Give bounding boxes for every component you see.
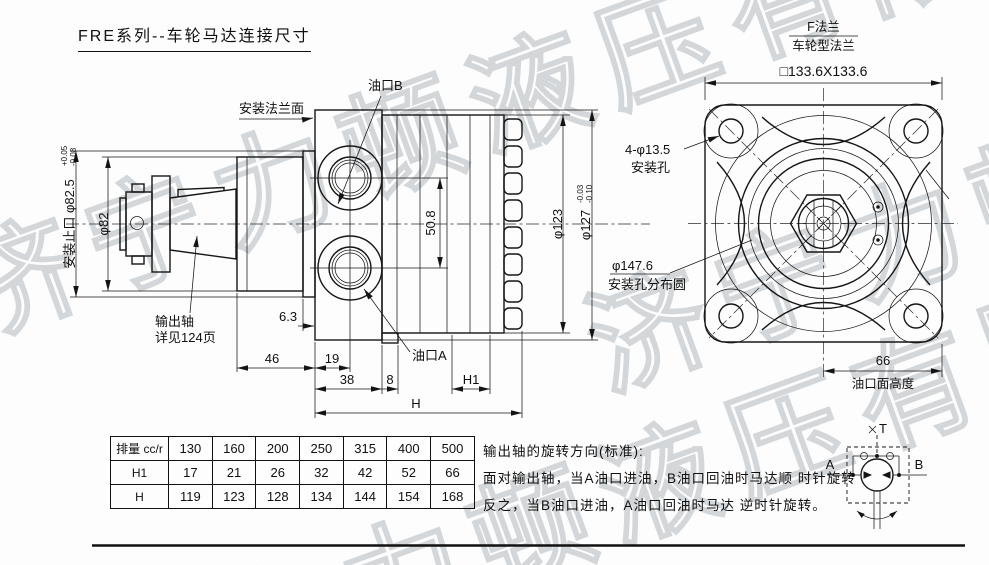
shaft-note-line1: 输出轴: [155, 314, 194, 329]
output-shaft-symbol: [857, 491, 897, 529]
flow-arrows: [864, 471, 891, 478]
bolt-circle-callout: φ147.6 安装孔分布圆: [608, 240, 752, 292]
table-cell: 42: [343, 461, 387, 485]
flange-type-top: F法兰: [807, 20, 840, 34]
table-cell: 32: [300, 461, 344, 485]
bolt-circle-line1: φ147.6: [612, 258, 653, 273]
motor-body: [382, 115, 504, 343]
port-t-label: T: [879, 421, 887, 436]
rotation-arrow: [857, 511, 897, 519]
table-header-row: 排量 cc/r 130 160 200 250 315 400 500: [111, 437, 475, 461]
dim-pilot-length: 6.3: [279, 299, 314, 331]
dim-38-label: 38: [340, 372, 354, 387]
dia-127-tol-upper: -0.03: [576, 184, 585, 203]
dim-50-8-label: 50.8: [423, 210, 438, 235]
dim-6-3-label: 6.3: [279, 309, 297, 324]
rotation-note: 输出轴的旋转方向(标准): 面对输出轴，当A油口进油，B油口回油时马达顺 时针旋…: [483, 438, 856, 519]
dim-19-label: 19: [325, 351, 339, 366]
col-header-displacement: 排量 cc/r: [111, 437, 169, 461]
dim-8-label: 8: [386, 372, 393, 387]
col-header: 200: [256, 437, 300, 461]
shaft-hub: [791, 195, 857, 252]
dim-port-spacing: 50.8: [423, 178, 440, 268]
table-cell: 128: [256, 485, 300, 509]
port-block: [315, 110, 382, 340]
col-header: 315: [343, 437, 387, 461]
port-b-leader: [338, 96, 381, 204]
table-cell: 123: [212, 485, 256, 509]
row-label: H1: [111, 461, 169, 485]
shaft-note-line2: 详见124页: [155, 330, 216, 345]
table-cell: 26: [256, 461, 300, 485]
port-a-label: 油口A: [412, 348, 447, 363]
page-title: FRE系列--车轮马达连接尺寸: [78, 22, 311, 52]
spec-table: 排量 cc/r 130 160 200 250 315 400 500 H1 1…: [110, 436, 475, 509]
pilot-dia-label: 安装止口 φ82.5: [62, 179, 77, 268]
port-face-height-label: 油口面高度: [852, 376, 915, 391]
dia-127-label: φ127: [578, 210, 593, 240]
rotation-note-line3: 反之，当B油口进油，A油口回油时马达 逆时针旋转。: [483, 492, 856, 519]
dim-66-label: 66: [876, 353, 890, 368]
col-header: 160: [212, 437, 256, 461]
mount-face-leader: [239, 118, 313, 119]
shaft-note-leader: [190, 236, 197, 313]
table-cell: 154: [387, 485, 431, 509]
square-size-label: □133.6X133.6: [780, 63, 868, 79]
rotation-note-line1: 输出轴的旋转方向(标准):: [483, 438, 856, 465]
table-cell: 17: [169, 461, 213, 485]
table-cell: 119: [169, 485, 213, 509]
side-view: 油口B 安装法兰面 输出轴 详见124页 油口A 安装止口 φ82.5 +0.0…: [60, 78, 650, 418]
dia-127-tol-lower: -0.10: [585, 184, 594, 203]
table-row-h: H 119 123 128 134 144 154 168: [111, 485, 475, 509]
table-cell: 168: [431, 485, 475, 509]
col-header: 500: [431, 437, 475, 461]
bolt-circle-line2: 安装孔分布圆: [608, 277, 686, 292]
flange-type-bottom: 车轮型法兰: [792, 38, 855, 53]
dia-123-label: φ123: [550, 209, 565, 239]
dim-46-label: 46: [265, 351, 279, 366]
dim-port-face-height: 66 油口面高度: [824, 344, 943, 391]
rotation-note-line2: 面对输出轴，当A油口进油，B油口回油时马达顺 时针旋转: [483, 465, 856, 492]
col-header: 130: [169, 437, 213, 461]
table-cell: 66: [431, 461, 475, 485]
mount-face-label: 安装法兰面: [239, 101, 304, 116]
col-header: 400: [387, 437, 431, 461]
table-cell: 134: [300, 485, 344, 509]
dim-h1-label: H1: [463, 372, 480, 387]
plug-cross-icon: [869, 426, 876, 433]
col-header: 250: [300, 437, 344, 461]
pilot-tol-lower: -0.08: [69, 147, 78, 166]
mount-hole-line2: 安装孔: [631, 160, 670, 175]
symbol-port-b-label: B: [915, 457, 924, 472]
pilot-tol-upper: +0.05: [60, 145, 69, 166]
dia-82-label: φ82: [96, 213, 111, 236]
dim-h-label: H: [411, 396, 420, 411]
port-b-label: 油口B: [368, 78, 403, 93]
table-cell: 144: [343, 485, 387, 509]
row-label: H: [111, 485, 169, 509]
front-view: F法兰 车轮型法兰 □133.6X133.6: [608, 20, 958, 391]
mount-hole-line1: 4-φ13.5: [625, 142, 670, 157]
drawing-page: 济宁力顿液压有限公司 济宁力顿液压有限公司 济宁力顿液压有限公司 FRE系列--…: [0, 0, 989, 565]
table-cell: 52: [387, 461, 431, 485]
table-cell: 21: [212, 461, 256, 485]
edge-leader: [926, 170, 949, 199]
table-row-h1: H1 17 21 26 32 42 52 66: [111, 461, 475, 485]
